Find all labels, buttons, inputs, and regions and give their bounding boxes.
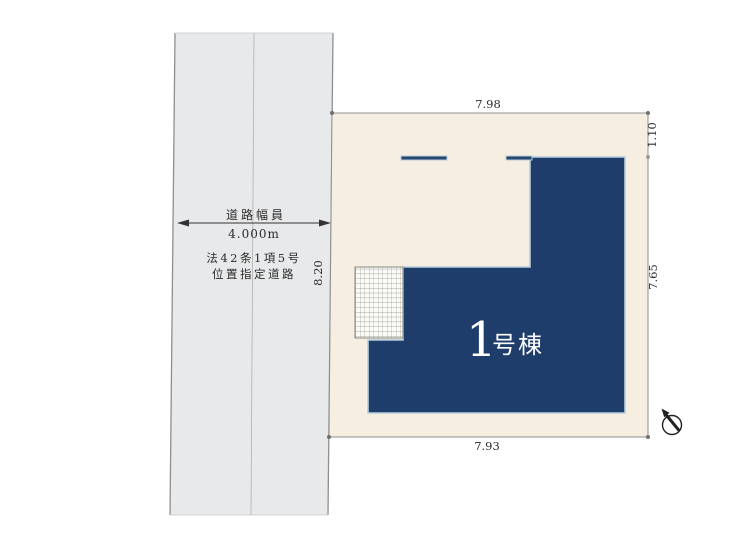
porch-hatch-area	[355, 267, 403, 338]
dim-tick	[646, 435, 650, 439]
building-suffix: 号棟	[492, 331, 544, 359]
dim-lot-top: 7.98	[475, 97, 501, 111]
site-plan-canvas: 1 号棟 7.98 1.10 7.65 7.93 8.20 道路幅員	[0, 0, 743, 557]
site-plan-svg: 1 号棟 7.98 1.10 7.65 7.93 8.20 道路幅員	[0, 0, 743, 557]
north-arrow-compass-icon	[662, 409, 682, 435]
dim-tick	[330, 111, 334, 115]
dim-tick	[646, 111, 650, 115]
road-width-label: 道路幅員	[226, 207, 286, 222]
building-eave-line-right	[506, 156, 532, 160]
dim-road-frontage: 8.20	[311, 260, 325, 286]
dim-setback-right-upper: 1.10	[645, 122, 659, 148]
road-law-line2: 位置指定道路	[212, 267, 296, 281]
dim-lot-right-lower: 7.65	[646, 264, 660, 290]
building-eave-line-left	[401, 156, 447, 160]
dim-lot-bottom: 7.93	[474, 439, 500, 453]
dim-tick	[327, 435, 331, 439]
dim-tick	[646, 155, 650, 159]
road-width-value: 4.000m	[228, 227, 280, 241]
road-law-line1: 法42条1項5号	[206, 251, 301, 265]
